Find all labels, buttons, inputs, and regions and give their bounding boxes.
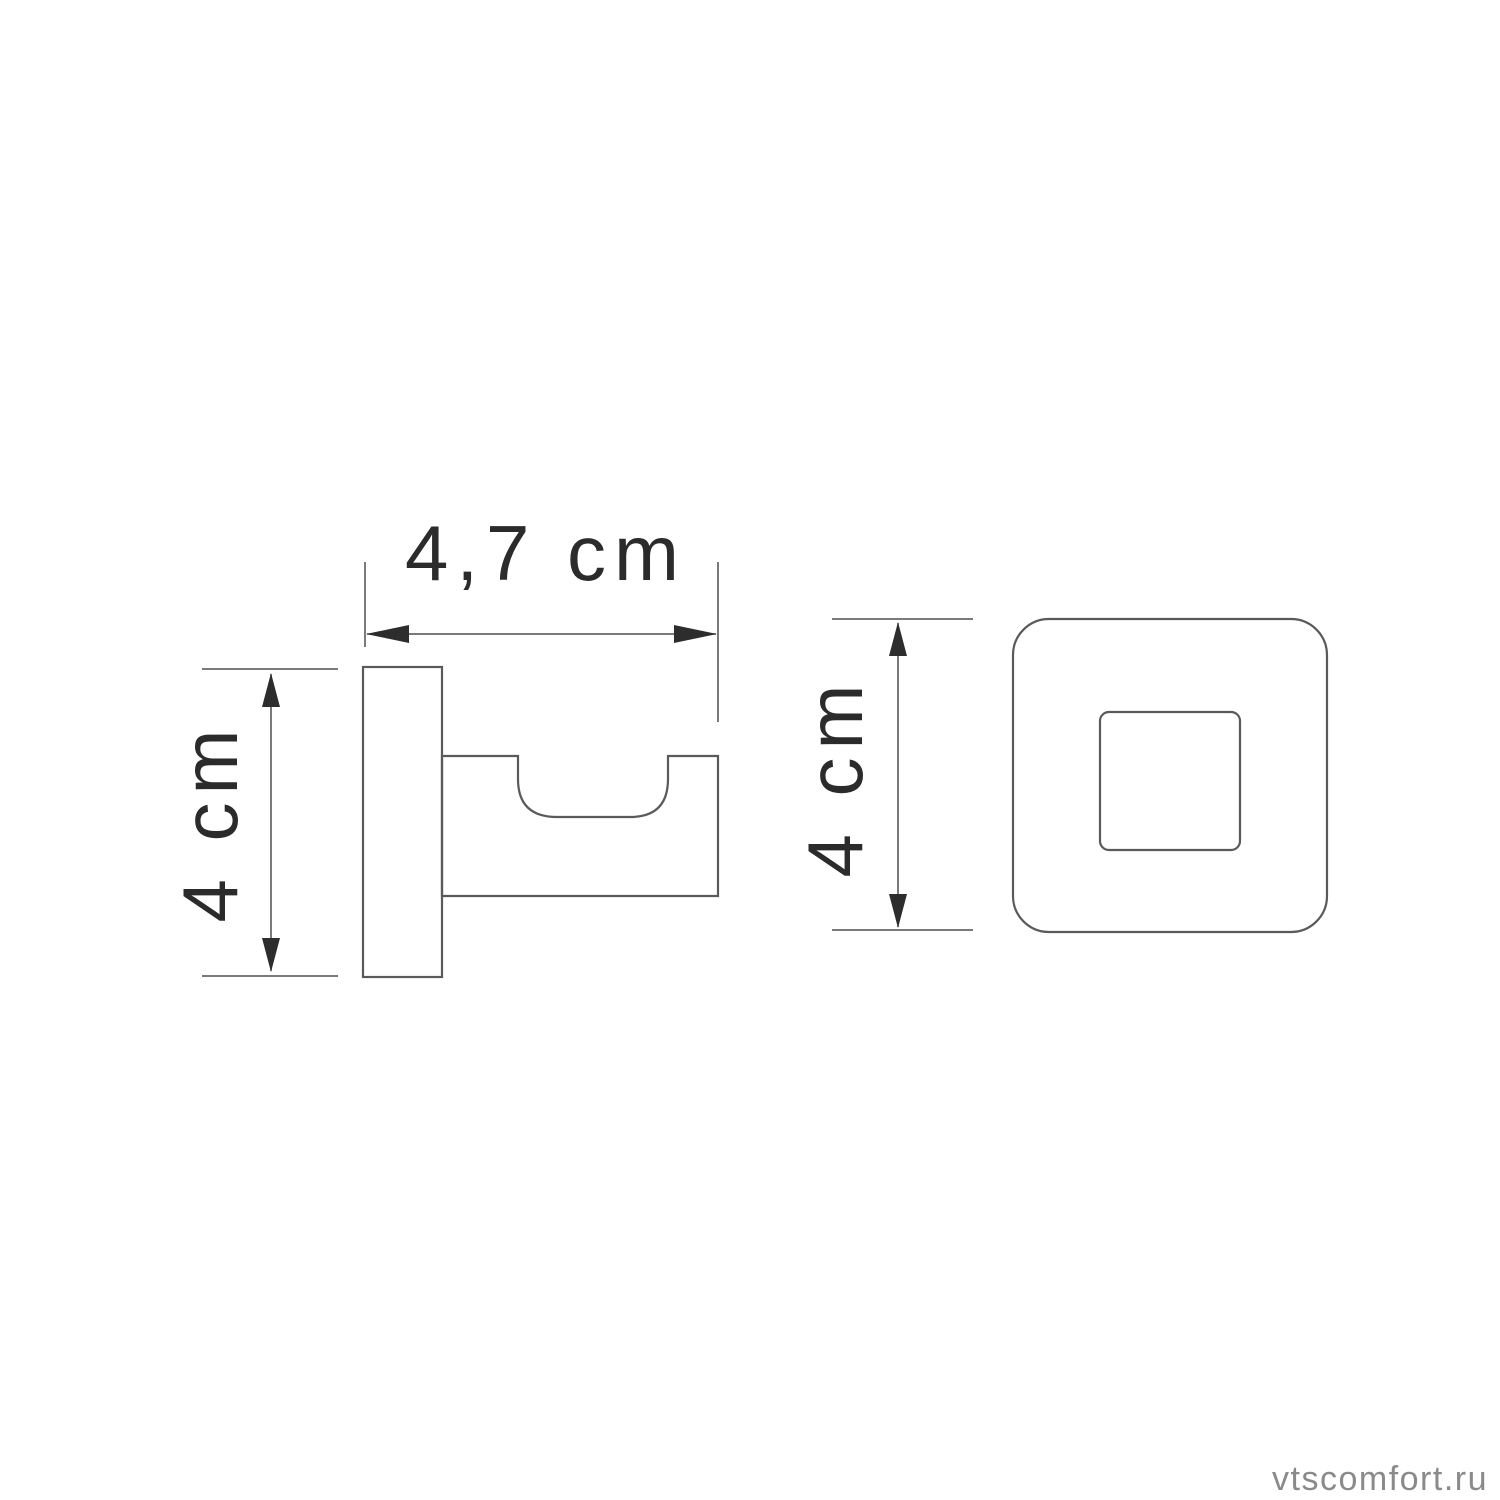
dimension-depth-label: 4,7 cm [405,509,687,597]
hook-dimension-drawing: 4,7 cm 4 cm 4 cm vtscomfort.ru [0,0,1500,1500]
side-view-wall-plate [363,667,442,977]
dimension-side-height: 4 cm [166,669,338,976]
front-view-outer-plate [1013,619,1327,932]
arrowhead-down-icon [889,894,907,928]
arrowhead-up-icon [889,622,907,656]
side-view-hook-arm [442,756,718,896]
side-view [363,667,718,977]
dimension-depth: 4,7 cm [365,509,718,722]
arrowhead-down-icon [262,938,280,972]
arrowhead-right-icon [674,625,717,643]
dimension-front-height-label: 4 cm [791,676,879,877]
arrowhead-left-icon [366,625,409,643]
arrowhead-up-icon [262,673,280,707]
front-view [1013,619,1327,932]
front-view-inner-square [1100,712,1240,850]
dimension-front-height: 4 cm [791,619,973,930]
dimension-side-height-label: 4 cm [166,721,254,922]
technical-drawing-canvas: 4,7 cm 4 cm 4 cm vtscomfort.ru [0,0,1500,1500]
watermark-text: vtscomfort.ru [1272,1460,1488,1498]
